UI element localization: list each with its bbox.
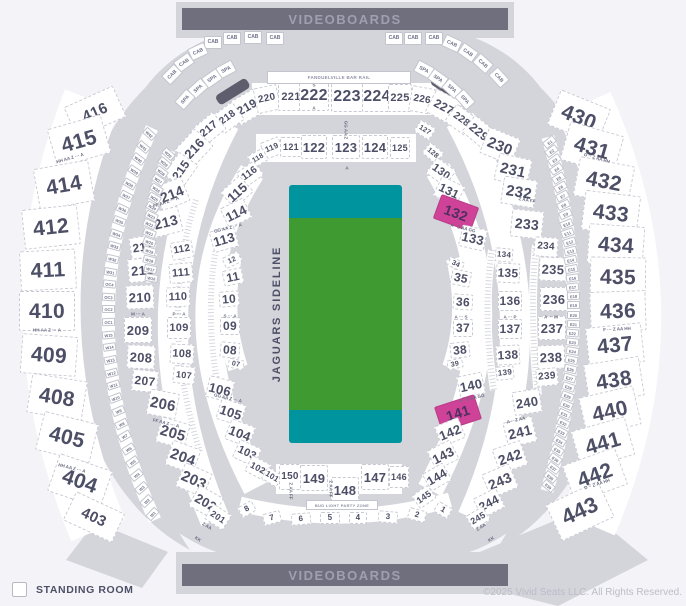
strip-section-w6[interactable]: W6 (120, 442, 135, 456)
section-209[interactable]: 209 (124, 317, 152, 343)
box-cab[interactable]: CAB (425, 32, 443, 45)
strip-section-e19[interactable]: E19 (567, 301, 580, 309)
row-letters: A (312, 106, 315, 111)
strip-section-w16[interactable]: W16 (144, 272, 158, 282)
row-letters: P ··· A (173, 312, 186, 317)
section-111[interactable]: 111 (168, 262, 194, 284)
section-07[interactable]: 07 (227, 357, 245, 370)
strip-section-w41[interactable]: W41 (136, 139, 151, 153)
section-134[interactable]: 134 (494, 247, 513, 263)
strip-section-oc2[interactable]: OC2 (102, 305, 115, 313)
box-cab[interactable]: CAB (223, 32, 241, 45)
strip-section-w36[interactable]: W36 (115, 202, 130, 215)
row-letters: Z AA FF (289, 483, 294, 500)
section-10[interactable]: 10 (218, 290, 239, 308)
section-412[interactable]: 412 (21, 204, 81, 250)
row-letters: KK (487, 535, 495, 543)
section-124[interactable]: 124 (362, 135, 388, 159)
strip-section-w11[interactable]: W11 (106, 380, 121, 392)
section-2[interactable]: 2 (407, 507, 427, 523)
row-letters: GG AA Z (344, 121, 349, 139)
section-414[interactable]: 414 (33, 159, 95, 210)
box-cab[interactable]: CAB (266, 32, 284, 45)
section-4[interactable]: 4 (349, 512, 367, 524)
strip-section-w15[interactable]: W15 (102, 330, 116, 339)
strip-section-oc1[interactable]: OC1 (102, 318, 115, 327)
section-234[interactable]: 234 (533, 236, 558, 258)
section-208[interactable]: 208 (126, 344, 155, 369)
videoboard-bottom: VIDEOBOARDS (182, 564, 508, 586)
section-125[interactable]: 125 (390, 137, 410, 159)
box-cab[interactable]: CAB (404, 32, 422, 45)
section-409[interactable]: 409 (20, 333, 79, 377)
strip-section-w13[interactable]: W13 (103, 355, 117, 365)
section-139[interactable]: 139 (495, 365, 514, 381)
section-403[interactable]: 403 (63, 491, 125, 543)
row-letters: Z AA FF (329, 481, 334, 498)
row-letters: M ··· A (131, 312, 145, 317)
section-108[interactable]: 108 (169, 343, 194, 364)
strip-section-w12[interactable]: W12 (104, 367, 119, 378)
section-210[interactable]: 210 (126, 285, 155, 310)
row-letters: A ··· P (503, 315, 516, 320)
strip-section-oc4[interactable]: OC4 (103, 279, 117, 288)
standing-room-legend: STANDING ROOM (12, 582, 133, 597)
strip-section-w10[interactable]: W10 (108, 392, 123, 404)
section-127[interactable]: 127 (414, 119, 437, 140)
stadium-seat-map: VIDEOBOARDS VIDEOBOARDS 4164154144124114… (0, 0, 686, 606)
section-110[interactable]: 110 (166, 287, 191, 308)
box-cab[interactable]: CAB (244, 31, 262, 44)
strip-section-w5[interactable]: W5 (124, 455, 139, 469)
strip-section-w1[interactable]: W1 (145, 506, 160, 521)
row-letters: A ··· M (544, 315, 558, 320)
strip-section-w14[interactable]: W14 (102, 342, 116, 352)
section-149[interactable]: 149 (300, 465, 328, 491)
strip-section-w4[interactable]: W4 (129, 468, 144, 482)
section-1[interactable]: 1 (433, 501, 453, 519)
strip-section-w7[interactable]: W7 (117, 430, 132, 443)
strip-section-e23[interactable]: E23 (566, 337, 580, 347)
strip-section-w37[interactable]: W37 (118, 190, 133, 203)
row-letters: S ··· A (223, 314, 236, 319)
section-122[interactable]: 122 (301, 135, 327, 159)
section-238[interactable]: 238 (537, 345, 566, 370)
row-letters: KK (194, 535, 202, 543)
section-135[interactable]: 135 (495, 262, 520, 283)
section-411[interactable]: 411 (19, 249, 77, 292)
section-107[interactable]: 107 (172, 365, 196, 385)
strip-section-e18[interactable]: E18 (566, 292, 580, 301)
strip-section-w33[interactable]: W33 (107, 241, 122, 252)
section-410[interactable]: 410 (19, 291, 75, 331)
strip-section-e21[interactable]: E21 (566, 319, 579, 328)
box-cab[interactable]: CAB (204, 36, 222, 49)
section-5[interactable]: 5 (320, 512, 340, 524)
strip-section-w32[interactable]: W32 (105, 254, 119, 265)
section-239[interactable]: 239 (535, 367, 558, 387)
bud-light-party-zone[interactable]: BUD LIGHT PARTY ZONE (306, 500, 378, 510)
section-146[interactable]: 146 (389, 466, 409, 488)
section-109[interactable]: 109 (167, 317, 191, 339)
section-138[interactable]: 138 (495, 344, 520, 365)
section-223[interactable]: 223 (331, 82, 363, 112)
section-137[interactable]: 137 (498, 319, 522, 339)
jaguars-sideline-label: JAGUARS SIDELINE (271, 234, 283, 394)
box-cab[interactable]: CAB (488, 66, 510, 88)
strip-section-w8[interactable]: W8 (113, 417, 128, 430)
section-08[interactable]: 08 (219, 341, 240, 359)
strip-section-e20[interactable]: E20 (567, 310, 580, 318)
strip-section-w34[interactable]: W34 (109, 228, 124, 240)
strip-section-e22[interactable]: E22 (566, 328, 580, 337)
row-letters: A (345, 166, 348, 171)
strip-section-w3[interactable]: W3 (134, 480, 149, 495)
section-8[interactable]: 8 (237, 500, 257, 518)
strip-section-w2[interactable]: W2 (139, 493, 154, 508)
box-cab[interactable]: CAB (385, 32, 403, 45)
section-35[interactable]: 35 (450, 268, 473, 288)
section-09[interactable]: 09 (220, 317, 240, 335)
strip-section-w39[interactable]: W39 (127, 165, 142, 179)
row-letters: HH AA Z ··· A (33, 328, 61, 333)
section-121[interactable]: 121 (280, 137, 302, 157)
row-letters: A ··· S (454, 315, 467, 320)
section-36[interactable]: 36 (452, 293, 473, 310)
section-136[interactable]: 136 (498, 291, 522, 311)
copyright-notice: ©2025 Vivid Seats LLC. All Rights Reserv… (483, 587, 682, 598)
strip-section-w35[interactable]: W35 (112, 215, 127, 227)
strip-section-w9[interactable]: W9 (111, 405, 126, 418)
strip-section-w42[interactable]: W42 (142, 127, 157, 142)
section-7[interactable]: 7 (262, 510, 282, 526)
section-38[interactable]: 38 (449, 341, 471, 359)
section-240[interactable]: 240 (511, 388, 542, 416)
section-6[interactable]: 6 (291, 512, 312, 526)
section-237[interactable]: 237 (538, 316, 566, 340)
section-147[interactable]: 147 (361, 464, 389, 490)
section-3[interactable]: 3 (378, 510, 399, 524)
videoboard-top: VIDEOBOARDS (182, 8, 508, 30)
strip-section-w31[interactable]: W31 (104, 266, 118, 276)
standing-room-label: STANDING ROOM (36, 584, 133, 596)
section-112[interactable]: 112 (170, 239, 195, 261)
section-37[interactable]: 37 (453, 319, 473, 337)
section-39[interactable]: 39 (446, 357, 464, 370)
strip-section-oc3[interactable]: OC3 (102, 292, 115, 301)
strip-section-e17[interactable]: E17 (566, 283, 580, 292)
fanduelville-bar-rail[interactable]: FANDUELVILLE BAR RAIL (267, 71, 411, 84)
strip-section-w38[interactable]: W38 (122, 177, 137, 191)
section-11[interactable]: 11 (222, 267, 245, 287)
strip-section-w40[interactable]: W40 (131, 152, 146, 166)
section-236[interactable]: 236 (540, 287, 568, 311)
standing-room-checkbox[interactable] (12, 582, 27, 597)
section-233[interactable]: 233 (510, 208, 545, 239)
section-206[interactable]: 206 (146, 388, 180, 419)
sections-layer: 4164154144124114104094084054044034304314… (0, 0, 686, 606)
